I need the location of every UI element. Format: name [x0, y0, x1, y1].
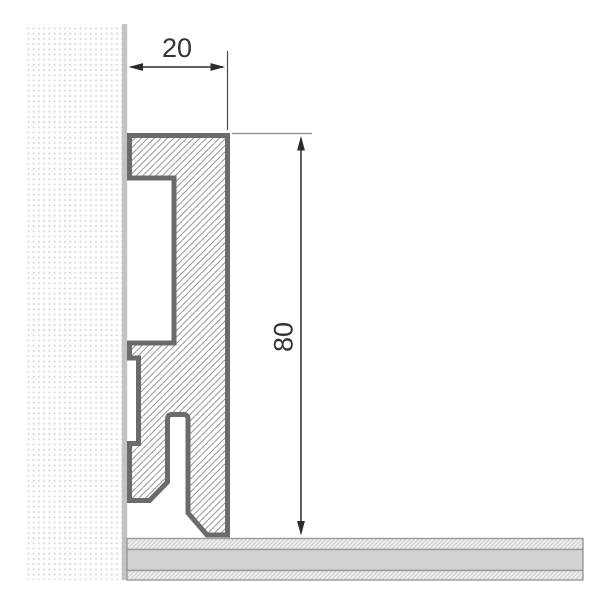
arrow-right-icon — [211, 63, 226, 71]
arrow-down-icon — [297, 521, 305, 536]
technical-drawing-canvas: 20 80 — [0, 0, 604, 604]
skirting-profile-section — [130, 136, 228, 536]
arrow-left-icon — [129, 63, 144, 71]
floor-middle-layer — [127, 550, 583, 571]
floor-bottom-layer — [127, 571, 583, 581]
width-dimension-label: 20 — [162, 33, 192, 63]
arrow-up-icon — [297, 136, 305, 151]
wall-surface — [25, 24, 122, 580]
width-dimension: 20 — [129, 33, 228, 130]
floor-top-layer — [127, 539, 583, 550]
wall-edge-strip — [122, 24, 127, 580]
skirting-profile-drawing: 20 80 — [0, 0, 604, 604]
height-dimension: 80 — [232, 134, 312, 536]
height-dimension-label: 80 — [269, 322, 299, 352]
floor — [127, 539, 583, 581]
